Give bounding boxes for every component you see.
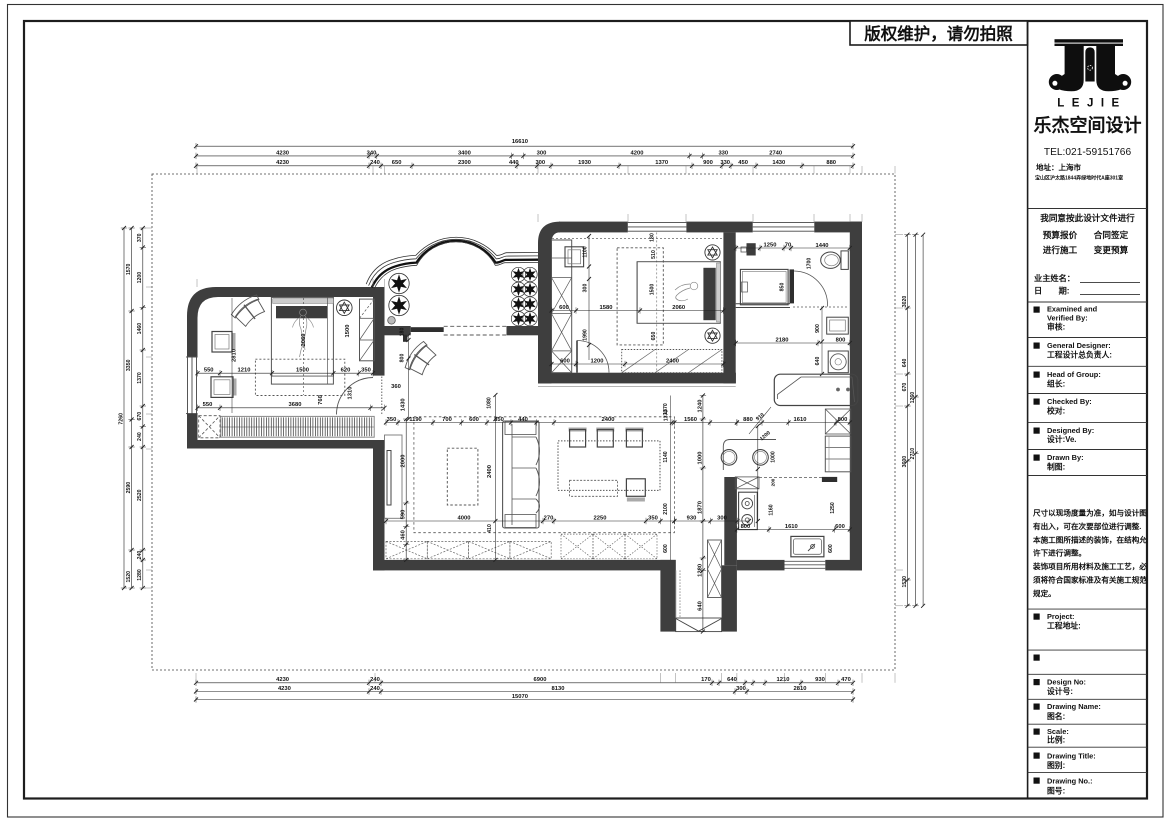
svg-text:变更预算: 变更预算 (1094, 244, 1129, 255)
svg-text:审核:: 审核: (1047, 322, 1065, 332)
svg-text:2180: 2180 (776, 337, 789, 343)
svg-text:850: 850 (780, 283, 786, 292)
svg-text:600: 600 (560, 358, 570, 364)
svg-text:1280: 1280 (697, 564, 703, 577)
svg-text:1580: 1580 (600, 305, 613, 311)
svg-text:工程地址:: 工程地址: (1047, 621, 1081, 631)
svg-text:760: 760 (318, 395, 324, 405)
svg-text:预算报价: 预算报价 (1043, 229, 1078, 240)
svg-text:16610: 16610 (512, 139, 528, 145)
svg-text:2520: 2520 (137, 489, 143, 501)
svg-text:Drawing Title:: Drawing Title: (1047, 752, 1096, 761)
svg-text:1240: 1240 (697, 400, 703, 413)
svg-text:550: 550 (204, 368, 214, 374)
svg-text:510: 510 (651, 250, 657, 259)
svg-text:4230: 4230 (278, 686, 291, 692)
svg-text:800: 800 (838, 417, 848, 423)
svg-text:2300: 2300 (458, 160, 471, 166)
svg-text:300: 300 (736, 686, 746, 692)
svg-text:900: 900 (703, 160, 713, 166)
svg-text:1610: 1610 (794, 417, 807, 423)
svg-text:Examined and: Examined and (1047, 305, 1098, 314)
svg-text:1440: 1440 (816, 243, 829, 249)
svg-text:2250: 2250 (594, 515, 607, 521)
svg-text:590: 590 (401, 510, 407, 520)
svg-text:3600: 3600 (902, 456, 908, 468)
svg-text:1430: 1430 (401, 398, 407, 411)
svg-text:600: 600 (663, 544, 669, 553)
svg-text:2000: 2000 (401, 455, 407, 468)
svg-text:640: 640 (697, 601, 703, 611)
svg-text:700: 700 (442, 417, 452, 423)
svg-text:进行施工: 进行施工 (1043, 244, 1078, 255)
svg-text:1100: 1100 (583, 246, 589, 257)
svg-text:800: 800 (836, 338, 846, 344)
svg-text:合同签定: 合同签定 (1094, 229, 1129, 240)
svg-text:我同意按此设计文件进行: 我同意按此设计文件进行 (1040, 212, 1135, 223)
svg-text:1500: 1500 (650, 284, 656, 296)
svg-text:1140: 1140 (663, 451, 669, 462)
svg-text:许下进行调整。: 许下进行调整。 (1033, 548, 1086, 558)
svg-text:1530: 1530 (902, 576, 908, 588)
svg-text:General Designer:: General Designer: (1047, 341, 1111, 350)
svg-text:2590: 2590 (126, 482, 132, 494)
svg-text:350: 350 (361, 368, 371, 374)
svg-text:930: 930 (815, 677, 825, 683)
svg-text:1500: 1500 (345, 325, 351, 338)
svg-text:1370: 1370 (137, 372, 143, 384)
svg-text:300: 300 (583, 284, 589, 293)
svg-text:1000: 1000 (770, 451, 776, 463)
svg-text:640: 640 (727, 677, 737, 683)
svg-text:650: 650 (651, 332, 657, 341)
svg-text:乐杰空间设计: 乐杰空间设计 (1034, 115, 1142, 136)
svg-text:900: 900 (815, 324, 821, 333)
svg-text:200: 200 (771, 478, 776, 486)
svg-text:640: 640 (902, 358, 908, 367)
svg-text:440: 440 (518, 417, 528, 423)
svg-text:3350: 3350 (126, 359, 132, 371)
svg-text:880: 880 (826, 160, 836, 166)
svg-text:规定。: 规定。 (1033, 588, 1056, 598)
svg-text:Designed By:: Designed By: (1047, 426, 1094, 435)
svg-text:2400: 2400 (487, 465, 493, 478)
svg-text:450: 450 (738, 160, 748, 166)
svg-text:7260: 7260 (118, 413, 124, 425)
svg-text:地址：上海市: 地址：上海市 (1036, 162, 1081, 172)
svg-text:1870: 1870 (697, 501, 703, 514)
svg-text:330: 330 (720, 160, 730, 166)
svg-text:3400: 3400 (458, 150, 471, 156)
svg-text:本施工图所描述的装饰，在结构允: 本施工图所描述的装饰，在结构允 (1033, 534, 1147, 544)
svg-text:300: 300 (535, 160, 545, 166)
svg-text:宝山区沪太路1844弄绿地时代A座301室: 宝山区沪太路1844弄绿地时代A座301室 (1035, 175, 1123, 182)
svg-text:4000: 4000 (458, 515, 471, 521)
svg-text:470: 470 (841, 677, 851, 683)
svg-text:1250: 1250 (830, 502, 836, 514)
svg-text:4230: 4230 (276, 150, 289, 156)
svg-text:1280: 1280 (137, 569, 143, 581)
svg-text:Head of Group:: Head of Group: (1047, 370, 1101, 379)
svg-text:Checked By:: Checked By: (1047, 397, 1092, 406)
svg-text:1560: 1560 (684, 417, 697, 423)
svg-text:2400: 2400 (602, 417, 615, 423)
svg-text:3020: 3020 (902, 296, 908, 308)
svg-text:2100: 2100 (663, 503, 669, 515)
svg-text:Design No:: Design No: (1047, 678, 1086, 687)
svg-text:1250: 1250 (764, 242, 777, 248)
svg-text:1610: 1610 (785, 524, 798, 530)
svg-text:6900: 6900 (534, 677, 547, 683)
svg-text:2710: 2710 (910, 448, 916, 460)
svg-text:2060: 2060 (672, 305, 685, 311)
svg-text:1160: 1160 (769, 504, 775, 515)
svg-text:180: 180 (650, 233, 656, 242)
svg-text:业主姓名：: 业主姓名： (1034, 273, 1075, 283)
svg-text:410: 410 (487, 524, 493, 533)
svg-text:1200: 1200 (137, 272, 143, 284)
svg-text:1310: 1310 (348, 387, 354, 400)
svg-text:300: 300 (537, 150, 547, 156)
svg-text:1210: 1210 (238, 368, 251, 374)
svg-text:240: 240 (370, 160, 380, 166)
svg-text:340: 340 (367, 150, 377, 156)
svg-text:180: 180 (400, 328, 406, 337)
svg-text:15070: 15070 (512, 694, 528, 700)
svg-text:440: 440 (509, 160, 519, 166)
svg-text:270: 270 (544, 515, 554, 521)
svg-text:600: 600 (835, 524, 845, 530)
svg-text:须将符合国家标准及有关施工规范: 须将符合国家标准及有关施工规范 (1033, 575, 1147, 585)
svg-text:1930: 1930 (578, 160, 591, 166)
svg-text:370: 370 (137, 233, 143, 242)
svg-text:600: 600 (828, 544, 834, 553)
svg-text:1430: 1430 (772, 160, 785, 166)
svg-text:880: 880 (743, 417, 753, 423)
svg-text:240: 240 (137, 551, 143, 560)
svg-text:图名:: 图名: (1047, 711, 1065, 721)
svg-text:工程设计总负责人:: 工程设计总负责人: (1047, 350, 1112, 360)
svg-text:日 期:: 日 期: (1034, 286, 1069, 296)
svg-text:1260: 1260 (910, 392, 916, 404)
svg-text:240: 240 (370, 686, 380, 692)
svg-text:4230: 4230 (276, 677, 289, 683)
svg-text:4230: 4230 (276, 160, 289, 166)
svg-text:校对:: 校对: (1047, 406, 1065, 416)
svg-text:360: 360 (391, 384, 401, 390)
svg-text:图号:: 图号: (1047, 787, 1065, 796)
svg-text:2740: 2740 (769, 150, 782, 156)
svg-text:2060: 2060 (301, 334, 307, 347)
svg-text:300: 300 (717, 515, 727, 521)
svg-text:设计:Ve.: 设计:Ve. (1047, 434, 1076, 444)
svg-text:1370: 1370 (663, 403, 669, 415)
svg-text:1700: 1700 (807, 258, 813, 270)
svg-text:比例:: 比例: (1047, 735, 1065, 745)
svg-text:有出入，可在次要部位进行调整.: 有出入，可在次要部位进行调整. (1033, 521, 1141, 531)
svg-text:Drawing No.:: Drawing No.: (1047, 777, 1093, 786)
svg-text:1370: 1370 (655, 160, 668, 166)
svg-text:Drawing Name:: Drawing Name: (1047, 702, 1101, 711)
svg-text:670: 670 (137, 412, 143, 421)
svg-text:1520: 1520 (126, 571, 132, 583)
svg-text:460: 460 (401, 530, 407, 540)
svg-text:350: 350 (387, 417, 397, 423)
svg-text:70: 70 (785, 242, 791, 248)
svg-text:2810: 2810 (794, 686, 807, 692)
svg-text:1500: 1500 (296, 368, 309, 374)
svg-text:350: 350 (648, 515, 658, 521)
svg-text:930: 930 (687, 515, 697, 521)
svg-text:Drawn By:: Drawn By: (1047, 453, 1084, 462)
svg-text:制图:: 制图: (1047, 462, 1065, 472)
svg-text:Verified By:: Verified By: (1047, 314, 1088, 323)
svg-text:600: 600 (469, 417, 479, 423)
svg-text:330: 330 (718, 150, 728, 156)
svg-text:装饰项目所用材料及施工工艺，必: 装饰项目所用材料及施工工艺，必 (1032, 561, 1147, 571)
svg-text:670: 670 (902, 383, 908, 392)
svg-text:550: 550 (203, 402, 213, 408)
svg-text:4200: 4200 (631, 150, 644, 156)
svg-text:1000: 1000 (697, 452, 703, 465)
svg-text:8130: 8130 (552, 686, 565, 692)
svg-text:620: 620 (341, 368, 351, 374)
svg-text:3680: 3680 (289, 402, 302, 408)
svg-text:1200: 1200 (591, 358, 604, 364)
svg-text:1460: 1460 (137, 323, 143, 335)
svg-text:1210: 1210 (777, 677, 790, 683)
svg-text:800: 800 (400, 354, 406, 363)
svg-text:TEL:021-59151766: TEL:021-59151766 (1044, 147, 1132, 158)
svg-text:1080: 1080 (487, 397, 493, 409)
svg-text:600: 600 (559, 305, 569, 311)
svg-text:LEJIE: LEJIE (1057, 98, 1126, 110)
svg-text:1990: 1990 (583, 329, 589, 341)
svg-text:1570: 1570 (126, 264, 132, 276)
svg-text:图别:: 图别: (1047, 761, 1065, 770)
svg-text:170: 170 (701, 677, 711, 683)
svg-text:640: 640 (815, 357, 821, 366)
svg-text:Project:: Project: (1047, 612, 1075, 621)
svg-text:版权维护，请勿拍照: 版权维护，请勿拍照 (864, 24, 1013, 44)
svg-text:尺寸以现场度量为准，如与设计图: 尺寸以现场度量为准，如与设计图 (1033, 508, 1147, 518)
svg-text:650: 650 (392, 160, 402, 166)
svg-text:组长:: 组长: (1047, 379, 1065, 389)
svg-text:1190: 1190 (409, 417, 422, 423)
svg-text:800: 800 (741, 524, 751, 530)
svg-text:2400: 2400 (666, 359, 679, 365)
svg-text:240: 240 (137, 432, 143, 441)
svg-text:设计号:: 设计号: (1047, 686, 1073, 696)
